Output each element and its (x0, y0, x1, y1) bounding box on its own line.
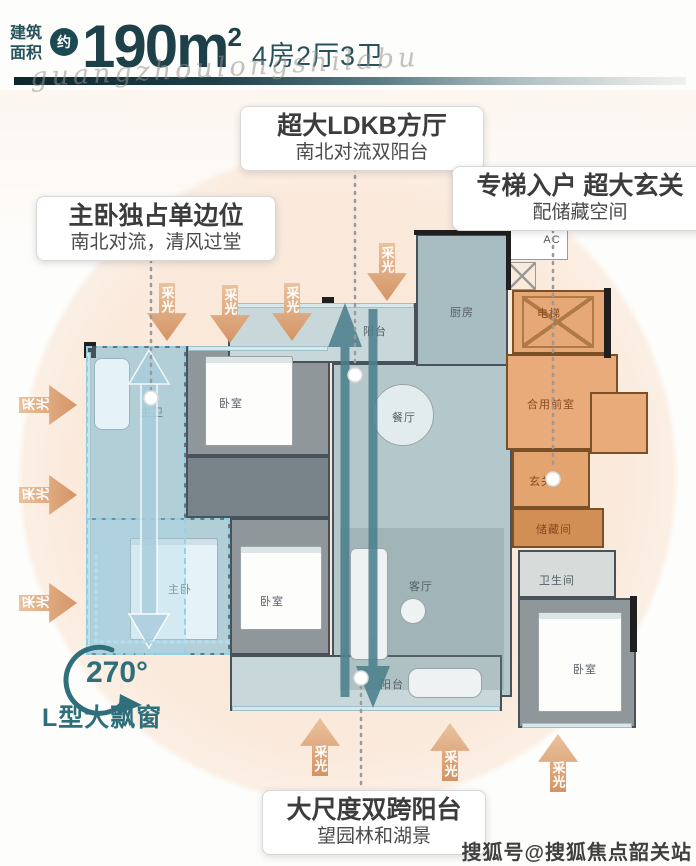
room-shared-lobby-step (590, 392, 648, 454)
callout-balcony: 大尺度双跨阳台 望园林和湖景 (262, 790, 486, 855)
light-arrow-label: 采光 (286, 286, 299, 314)
lounge-chair (408, 668, 482, 698)
light-arrow-label: 采光 (224, 288, 237, 316)
sohu-watermark: 搜狐号@搜狐焦点韶关站 (461, 836, 692, 865)
label-ac: AC (543, 234, 560, 246)
label-elevator: 电梯 (537, 305, 561, 321)
light-arrow-label: 采光 (314, 745, 327, 773)
light-arrow-down: 采光 (272, 283, 312, 341)
shaft-x-box (508, 262, 536, 290)
room-wardrobe-corridor (186, 456, 330, 518)
light-arrow-up: 采光 (430, 723, 470, 781)
elevator-x-box (522, 296, 594, 348)
approx-badge: 约 (50, 28, 78, 56)
light-arrow-right: 采光 (19, 583, 77, 623)
light-arrow-label: 采光 (552, 761, 565, 789)
wall-block (414, 230, 510, 235)
light-arrow-right: 采光 (19, 475, 77, 515)
wall-block (630, 596, 637, 652)
bed-middle-bedroom (240, 546, 322, 630)
window-band (188, 346, 328, 351)
callout-entry-subtitle: 配储藏空间 (461, 201, 696, 225)
master-suite-highlight-bottom (86, 518, 230, 655)
label-foyer: 玄关 (529, 473, 553, 489)
wall-block (604, 288, 611, 358)
callout-ldkb-subtitle: 南北对流双阳台 (249, 141, 475, 165)
light-arrow-down: 采光 (147, 283, 187, 341)
light-arrow-label: 采光 (22, 399, 50, 412)
bay-window-label: L型大飘窗 (42, 698, 162, 734)
label-living: 客厅 (409, 578, 433, 594)
label-bedroom-bottom: 卧室 (573, 661, 597, 677)
window-band (230, 303, 414, 308)
label-bedroom-top: 卧室 (219, 395, 243, 411)
room-balcony-top (228, 303, 416, 363)
callout-master-title: 主卧独占单边位 (45, 202, 267, 231)
light-arrow-right: 采光 (19, 385, 77, 425)
area-exponent: 2 (227, 22, 241, 52)
window-band (232, 706, 500, 711)
sofa (350, 548, 388, 660)
callout-balcony-subtitle: 望园林和湖景 (271, 825, 477, 849)
light-arrow-label: 采光 (161, 286, 174, 314)
light-arrow-label: 采光 (444, 750, 457, 778)
callout-entry: 专梯入户 超大玄关 配储藏空间 (452, 166, 696, 231)
light-arrow-down: 采光 (367, 243, 407, 301)
coffee-table (400, 598, 426, 624)
light-arrow-label: 采光 (22, 597, 50, 610)
callout-master: 主卧独占单边位 南北对流，清风过堂 (36, 196, 276, 261)
area-label: 建筑 面积 (10, 24, 42, 64)
light-arrow-down: 采光 (210, 285, 250, 343)
callout-ldkb-title: 超大LDKB方厅 (249, 112, 475, 141)
light-arrow-up: 采光 (300, 718, 340, 776)
light-arrow-label: 采光 (381, 246, 394, 274)
page: 建筑 面积 约 190m2 4房2厅3卫 guangzhoulongshilab… (0, 0, 696, 866)
light-arrow-up: 采光 (538, 734, 578, 792)
callout-entry-title: 专梯入户 超大玄关 (461, 172, 696, 201)
callout-master-subtitle: 南北对流，清风过堂 (45, 231, 267, 255)
area-label-line1: 建筑 (10, 24, 42, 44)
label-kitchen: 厨房 (450, 304, 474, 320)
callout-ldkb: 超大LDKB方厅 南北对流双阳台 (240, 106, 484, 171)
window-band (522, 723, 632, 728)
label-balcony-top: 阳台 (363, 323, 387, 339)
label-shared-lobby: 合用前室 (527, 396, 575, 412)
label-storage: 储藏间 (536, 521, 572, 537)
light-arrow-label: 采光 (22, 489, 50, 502)
bay-window-degrees: 270° (86, 656, 148, 690)
label-bedroom-middle: 卧室 (260, 593, 284, 609)
room-kitchen (416, 234, 508, 366)
label-dining: 餐厅 (392, 409, 416, 425)
label-balcony-bottom: 阳台 (380, 676, 404, 692)
label-bathroom: 卫生间 (539, 572, 575, 588)
callout-balcony-title: 大尺度双跨阳台 (271, 796, 477, 825)
